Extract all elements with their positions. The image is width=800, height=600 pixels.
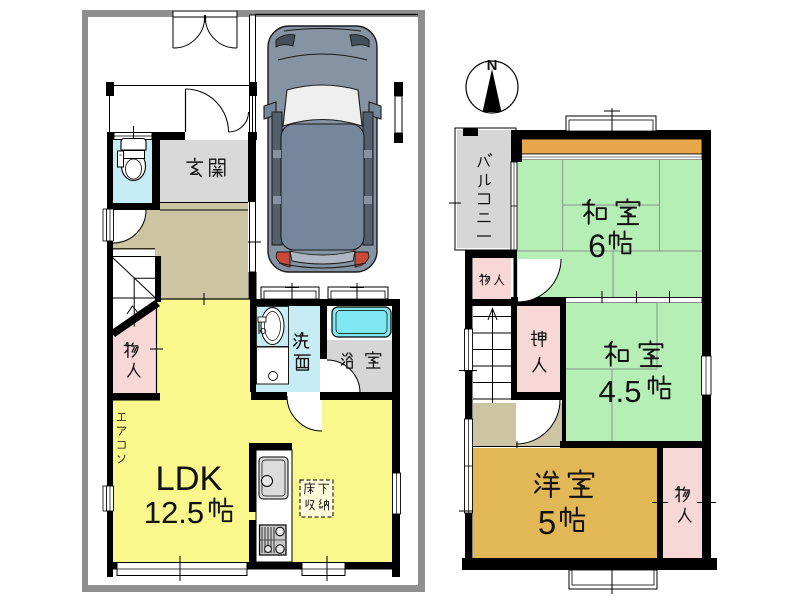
- svg-text:6: 6: [588, 228, 606, 264]
- svg-text:4.5: 4.5: [598, 374, 641, 409]
- svg-text:12.5: 12.5: [144, 495, 204, 530]
- svg-text:5: 5: [538, 504, 556, 541]
- svg-text:LDK: LDK: [155, 460, 222, 498]
- svg-text:N: N: [487, 57, 498, 74]
